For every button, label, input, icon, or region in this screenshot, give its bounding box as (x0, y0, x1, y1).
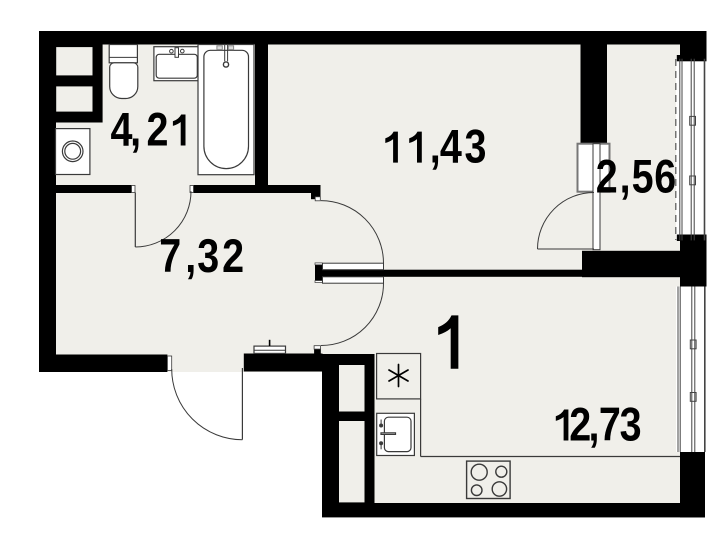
svg-text:3: 3 (465, 121, 487, 173)
svg-text:,: , (185, 231, 196, 283)
svg-text:2: 2 (147, 104, 169, 156)
svg-text:2: 2 (596, 151, 618, 203)
svg-text:,: , (130, 104, 141, 156)
svg-text:,: , (589, 399, 600, 451)
svg-text:7: 7 (599, 399, 621, 451)
svg-text:,: , (620, 151, 631, 203)
svg-text:5: 5 (632, 151, 654, 203)
svg-text:4: 4 (440, 121, 462, 173)
svg-text:3: 3 (620, 399, 642, 451)
svg-text:3: 3 (197, 231, 219, 283)
svg-text:7: 7 (159, 231, 181, 283)
svg-text:2: 2 (222, 231, 244, 283)
svg-text:6: 6 (654, 151, 676, 203)
svg-text:4: 4 (111, 104, 133, 156)
